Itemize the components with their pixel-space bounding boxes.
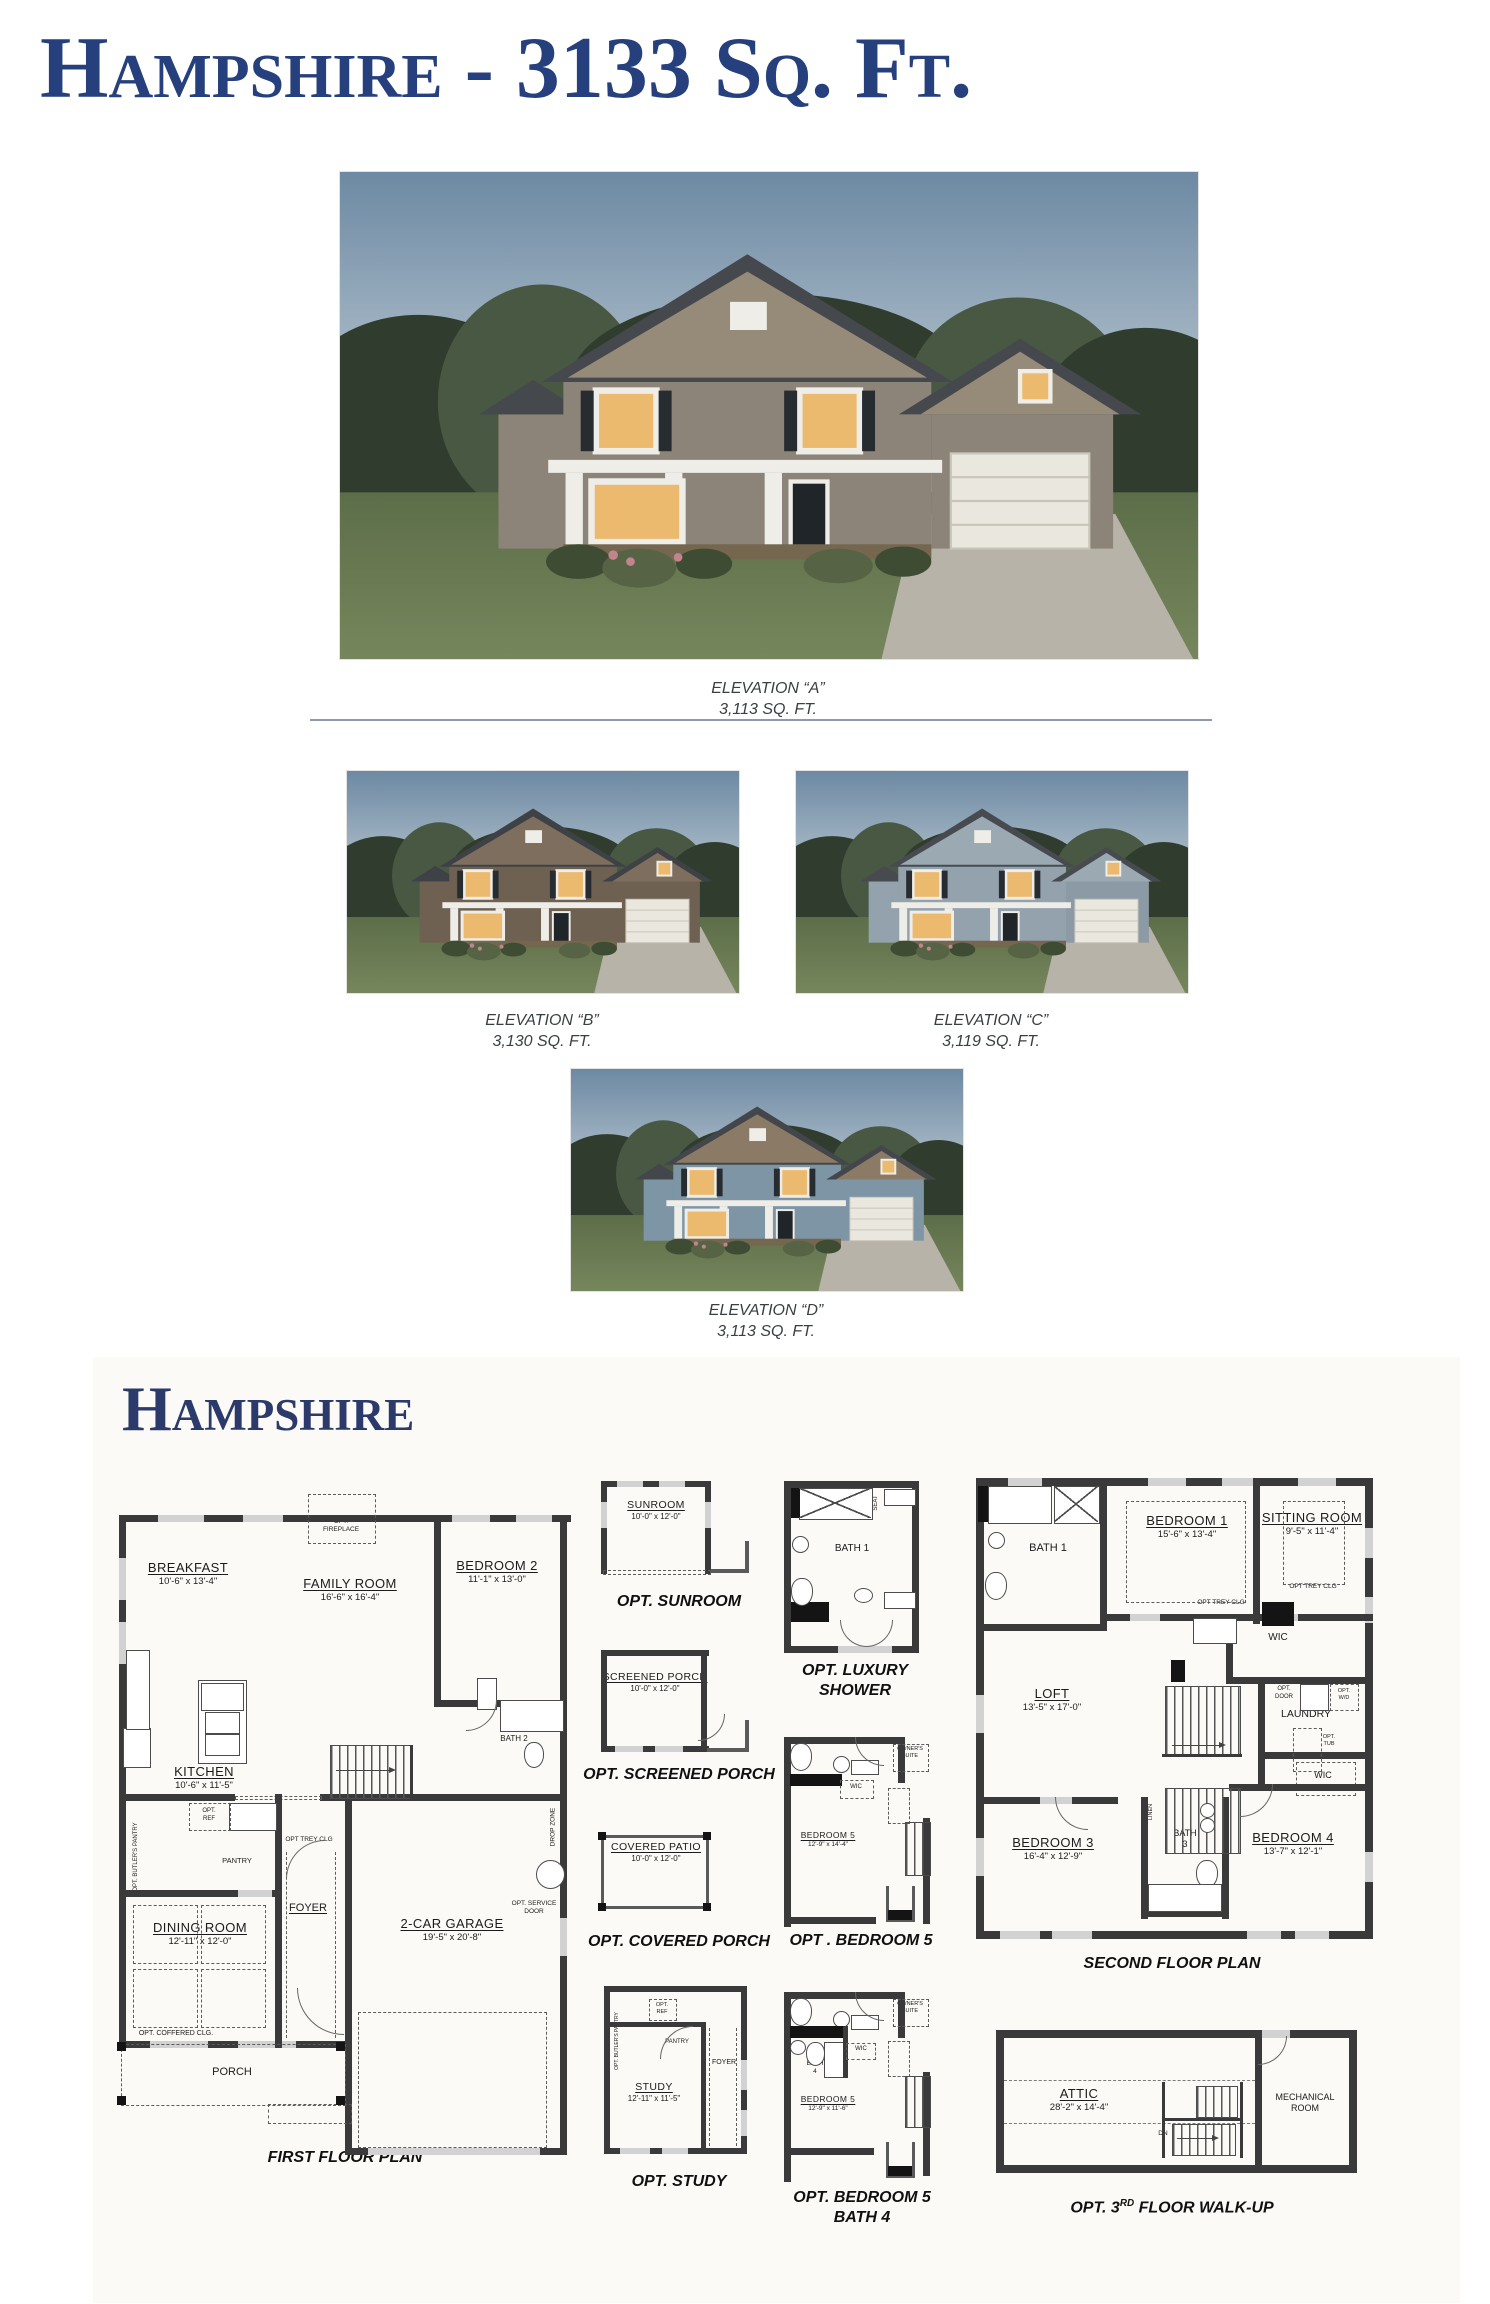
plan-wall [1130,1614,1160,1621]
plan-wall [790,1998,812,2026]
elevation-a-caption-line2: 3,113 SQ. FT. [719,701,817,718]
plan-wall [784,1481,919,1488]
plan-wall [536,1860,565,1889]
room-kitchen: KITCHEN 10'-6" x 11'-5" [174,1764,234,1792]
plan-wall [707,1748,747,1752]
plan-wall [893,1999,929,2027]
room-sf-bath1: BATH 1 [1029,1542,1067,1555]
plan-wall [1300,1684,1329,1711]
plan-wall [1193,1618,1237,1644]
plan-wall [238,1890,272,1897]
plan-wall [126,1650,150,1730]
plan-wall [601,1650,709,1656]
plan-wall [117,2096,126,2105]
plan-wall [368,2148,540,2155]
plan-wall [1148,1884,1222,1912]
plan-wall [784,1737,791,1927]
plan-wall [601,1650,607,1752]
label-sf-wic: WIC [1268,1632,1287,1644]
room-breakfast-dims: 10'-6" x 13'-4" [148,1576,228,1588]
plan-wall [1200,1803,1215,1818]
plan-wall [790,2026,843,2038]
plan-wall [1247,1931,1281,1939]
elevation-d-caption-line1: ELEVATION “D” [709,1302,823,1319]
room-screened-porch: SCREENED PORCH 10'-0" x 12'-0" [603,1671,708,1694]
plan-wall [1293,1728,1322,1772]
plan-wall [560,1515,567,1807]
plan-wall [1200,1818,1215,1833]
plan-wall [604,1986,747,1992]
section-header: Hampshire [122,1372,414,1446]
plan-wall [1253,1478,1260,1624]
plan-wall [888,1910,912,1920]
plan-wall [601,1835,709,1838]
caption-second-floor: SECOND FLOOR PLAN [1084,1954,1261,1974]
room-breakfast: BREAKFAST 10'-6" x 13'-4" [148,1560,228,1588]
label-study-opt-butlers: OPT. BUTLER'S PANTRY [614,2012,620,2070]
plan-wall [741,2110,747,2136]
plan-wall [784,1481,791,1653]
plan-wall [790,2040,806,2055]
stairs-direction-arrow [1172,1745,1224,1746]
plan-wall [662,2148,688,2154]
plan-wall [846,2043,876,2060]
caption-opt-bedroom5-bath4: OPT. BEDROOM 5 BATH 4 [793,2188,931,2229]
plan-wall [1000,1931,1040,1939]
plan-wall [784,2148,874,2155]
label-drop-zone: DROP ZONE [550,1808,557,1847]
caption-opt-sunroom: OPT. SUNROOM [617,1592,741,1612]
plan-wall [452,1515,490,1522]
plan-wall [601,1906,709,1909]
brochure-page: Hampshire - 3133 Sq. Ft. ELEVATION “A” 3… [0,0,1490,2304]
plan-wall [1298,1478,1336,1486]
elevation-a-caption-line1: ELEVATION “A” [711,680,825,697]
elevation-c-caption-line2: 3,119 SQ. FT. [942,1033,1040,1050]
plan-wall [620,2148,650,2154]
elevation-d-photo [570,1068,964,1292]
elevation-b-caption: ELEVATION “B” 3,130 SQ. FT. [485,1010,599,1052]
stairs-hatch [905,2076,931,2128]
label-sf-opt-door: OPT. DOOR [1271,1686,1297,1701]
plan-wall [784,1917,876,1924]
plan-wall [119,1622,126,1664]
room-bath2: BATH 2 [499,1734,529,1744]
plan-wall [912,1481,919,1653]
plan-wall [275,1794,282,2048]
plan-wall [833,1756,850,1773]
caption-opt-screened-porch: OPT. SCREENED PORCH [583,1765,775,1785]
plan-wall [838,1646,892,1653]
stairs-hatch [330,1745,412,1799]
plan-wall [806,2042,825,2066]
plan-wall [1148,1478,1186,1486]
plan-wall [745,1720,749,1752]
room-bedroom2: BEDROOM 2 11'-1" x 13'-0" [456,1558,538,1586]
room-garage: 2-CAR GARAGE 19'-5" x 20'-8" [400,1916,503,1944]
plan-wall [888,1788,910,1824]
plan-wall [912,1886,915,1922]
elevation-b-caption-line2: 3,130 SQ. FT. [492,1033,591,1050]
plan-wall [791,1578,813,1606]
plan-wall [976,1624,1107,1631]
plan-wall [976,1695,984,1733]
plan-wall [709,2028,737,2146]
plan-wall [524,1742,544,1768]
plan-wall [884,1489,916,1506]
elevation-b-photo [346,770,740,994]
plan-wall [1141,1797,1148,1919]
divider-line [310,719,1212,721]
plan-wall [598,1832,606,1840]
plan-wall [1365,1852,1373,1882]
room-family: FAMILY ROOM 16'-6" x 16'-4" [303,1576,397,1604]
plan-wall [703,1832,711,1840]
plan-wall [336,2042,345,2051]
page-title: Hampshire - 3133 Sq. Ft. [40,18,972,119]
plan-wall [189,1803,231,1831]
plan-wall [201,1683,244,1711]
room-bedroom3: BEDROOM 3 16'-4" x 12'-9" [1012,1835,1094,1863]
label-opt-service-door: OPT. SERVICE DOOR [509,1900,559,1916]
elevation-d-caption: ELEVATION “D” 3,113 SQ. FT. [709,1300,823,1342]
plan-wall [988,1486,1052,1524]
caption-opt-covered-porch: OPT. COVERED PORCH [588,1932,770,1952]
plan-wall [1004,2080,1255,2081]
plan-wall [201,1905,266,1964]
plan-wall [840,1780,874,1799]
plan-wall [229,1803,277,1831]
elevation-a-caption: ELEVATION “A” 3,113 SQ. FT. [711,678,825,720]
room-bed5: BEDROOM 5 12'-9" x 14'-4" [801,1830,856,1849]
plan-wall [117,2042,126,2051]
plan-wall [1100,1478,1107,1624]
plan-wall [655,1746,683,1752]
plan-wall [884,1592,916,1609]
shower-x-mark [1054,1486,1098,1522]
plan-wall [1162,1754,1242,1757]
plan-wall [976,1838,984,1876]
elevation-c-caption-line1: ELEVATION “C” [934,1012,1048,1029]
plan-wall [659,1481,685,1487]
plan-wall [1283,1501,1345,1585]
plan-wall [888,2041,910,2077]
plan-wall [434,1515,441,1707]
room-breakfast-name: BREAKFAST [148,1560,228,1576]
elevation-d-caption-line2: 3,113 SQ. FT. [717,1323,815,1340]
plan-wall [205,1734,240,1756]
plan-wall [711,1569,749,1573]
plan-wall [133,1969,198,2028]
plan-wall [133,1905,198,1964]
plan-wall [601,1835,604,1909]
plan-wall [1171,1660,1185,1682]
room-study: STUDY 12'-11" x 11'-5" [628,2081,680,2104]
plan-wall [996,2030,1357,2038]
stairs-direction-arrow [1177,2138,1217,2139]
label-sf-linen2: LINEN [1148,1804,1154,1820]
plan-wall [358,2012,547,2148]
plan-wall [119,1794,235,1801]
plan-wall [741,2060,747,2090]
plan-wall [1258,1684,1265,1790]
stairs-direction-arrow [336,1770,394,1771]
plan-wall [123,1728,151,1768]
elevation-b-caption-line1: ELEVATION “B” [485,1012,599,1029]
plan-wall [996,2165,1357,2173]
plan-wall [1349,2030,1357,2173]
plan-wall [1008,1478,1042,1486]
plan-wall [703,1903,711,1911]
plan-wall [603,1570,711,1575]
room-bed5b: BEDROOM 5 12'-9" x 11'-6" [801,2094,856,2113]
plan-wall [119,1558,126,1600]
plan-wall [854,1588,873,1603]
stairs-hatch [1172,2124,1236,2156]
plan-wall [617,1481,643,1487]
plan-wall [205,1712,240,1734]
plan-wall [1330,1684,1359,1711]
plan-wall [268,2104,352,2124]
plan-wall [1165,2118,1240,2121]
plan-wall [243,1515,283,1522]
plan-wall [1226,1677,1373,1684]
plan-wall [598,1903,606,1911]
plan-wall [996,2030,1004,2173]
plan-wall [121,2044,346,2106]
plan-wall [893,1744,929,1772]
label-opt-coffered-clg: OPT. COFFERED CLG. [139,2030,213,2039]
stairs-hatch [1196,2086,1238,2118]
plan-wall [410,1745,413,1800]
room-loft: LOFT 13'-5" x 17'-0" [1023,1686,1081,1714]
caption-opt-bedroom5: OPT . BEDROOM 5 [789,1931,932,1951]
plan-wall [649,1999,677,2021]
plan-wall [792,1536,809,1553]
stairs-hatch [905,1822,931,1876]
plan-wall [345,1794,352,2155]
plan-wall [201,1969,266,2028]
room-attic: ATTIC 28'-2" x 14'-4" [1050,2086,1108,2114]
plan-wall [790,1743,812,1771]
plan-wall [988,1532,1005,1549]
room-covered-patio: COVERED PATIO 10'-0" x 12'-0" [611,1841,701,1864]
plan-wall [706,1835,709,1909]
caption-third-floor-walkup: OPT. 3RD FLOOR WALK-UP [1070,2198,1273,2219]
plan-wall [985,1572,1007,1600]
plan-wall [336,2096,345,2105]
plan-wall [604,1986,610,2154]
room-sunroom: SUNROOM 10'-0" x 12'-0" [627,1499,685,1522]
plan-wall [1240,2082,1243,2158]
room-lux-bath1: BATH 1 [835,1543,869,1555]
plan-wall [790,1774,842,1786]
plan-wall [705,1502,711,1528]
room-pantry: PANTRY [222,1856,252,1865]
plan-wall [888,2166,912,2176]
elevation-a-photo [339,171,1199,660]
elevation-c-caption: ELEVATION “C” 3,119 SQ. FT. [934,1010,1048,1052]
label-lux-seat: SEAT [873,1495,879,1510]
plan-wall [701,2022,706,2154]
plan-wall [560,1918,567,1956]
plan-wall [601,1502,607,1528]
plan-wall [1262,1602,1294,1626]
plan-wall [1365,1528,1373,1558]
plan-wall [978,1486,988,1522]
plan-wall [745,1541,749,1573]
plan-wall [1126,1501,1246,1603]
plan-wall [1295,1931,1329,1939]
label-opt-butlers-pantry: OPT. BUTLER'S PANTRY [133,1822,139,1891]
plan-wall [824,2042,844,2078]
room-bedroom4: BEDROOM 4 13'-7" x 12'-1" [1252,1830,1334,1858]
plan-wall [500,1700,564,1732]
plan-wall [615,1746,643,1752]
caption-opt-luxury-shower: OPT. LUXURY SHOWER [802,1661,908,1702]
plan-wall [308,1494,376,1544]
shower-x-mark [799,1488,871,1518]
plan-wall [791,1602,829,1622]
plan-wall [912,2142,915,2178]
plan-wall [1052,1931,1092,1939]
caption-opt-study: OPT. STUDY [632,2172,727,2192]
room-mechanical: MECHANICAL ROOM [1275,2092,1334,2115]
plan-wall [560,1807,567,2155]
plan-wall [158,1515,204,1522]
elevation-c-photo [795,770,1189,994]
plan-wall [516,1515,552,1522]
